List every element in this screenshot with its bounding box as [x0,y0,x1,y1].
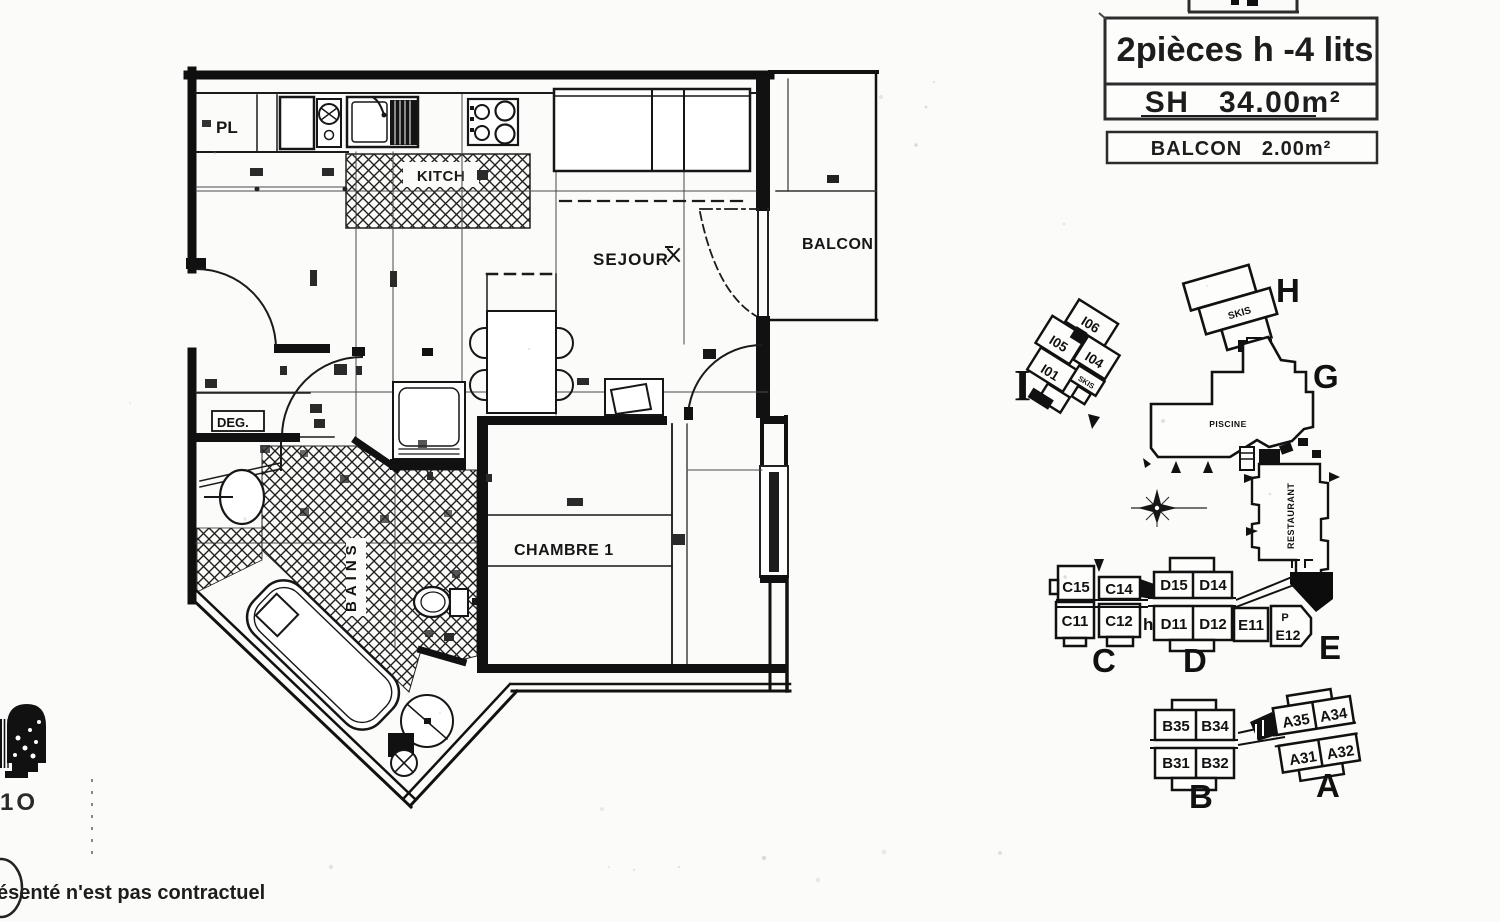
svg-text:G: G [1313,358,1339,395]
svg-text:KITCH: KITCH [417,168,465,185]
svg-text:B32: B32 [1201,755,1229,772]
svg-text:D12: D12 [1199,616,1227,633]
svg-text:C11: C11 [1062,613,1089,630]
svg-text:B34: B34 [1201,718,1229,735]
svg-text:SEJOUR: SEJOUR [593,250,669,269]
svg-text:BAINS: BAINS [343,540,360,612]
svg-text:E12: E12 [1276,627,1301,643]
svg-text:I: I [1014,361,1031,410]
svg-text:2pièces h -4 lits: 2pièces h -4 lits [1117,31,1374,69]
svg-text:C12: C12 [1105,613,1133,630]
svg-text:P: P [1281,612,1288,624]
svg-text:D15: D15 [1160,577,1188,594]
svg-text:B: B [1189,778,1213,815]
svg-text:1O: 1O [0,789,38,816]
svg-text:PL: PL [216,118,238,137]
svg-text:B31: B31 [1162,755,1190,772]
svg-text:PISCINE: PISCINE [1209,419,1247,429]
svg-text:BALCON: BALCON [802,236,873,253]
svg-text:C14: C14 [1105,581,1133,598]
svg-text:E11: E11 [1238,617,1264,634]
svg-text:D11: D11 [1161,616,1188,633]
svg-text:E: E [1319,629,1341,666]
svg-text:SH 34.00m²: SH 34.00m² [1145,86,1341,119]
svg-text:C15: C15 [1062,579,1090,596]
svg-text:BALCON 2.00m²: BALCON 2.00m² [1151,138,1332,160]
svg-text:h: h [1143,615,1153,634]
svg-text:C: C [1092,642,1116,679]
svg-text:D14: D14 [1199,577,1227,594]
svg-text:D: D [1183,642,1207,679]
svg-text:ésenté n'est pas contractuel: ésenté n'est pas contractuel [0,882,265,904]
svg-text:CHAMBRE 1: CHAMBRE 1 [514,542,614,559]
svg-text:A: A [1316,767,1340,804]
svg-text:H: H [1276,272,1300,309]
svg-text:B35: B35 [1162,718,1190,735]
svg-text:RESTAURANT: RESTAURANT [1286,483,1296,549]
svg-text:DEG.: DEG. [217,415,249,430]
